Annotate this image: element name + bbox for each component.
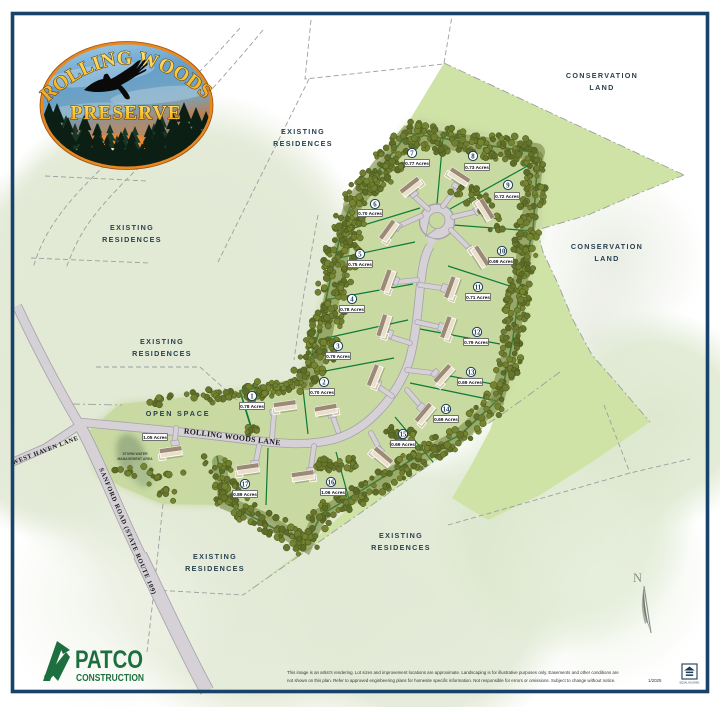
- svg-text:17: 17: [242, 481, 249, 488]
- svg-text:12: 12: [474, 329, 481, 336]
- svg-text:CONSERVATION: CONSERVATION: [571, 242, 643, 251]
- svg-text:EXISTING: EXISTING: [140, 337, 184, 346]
- svg-text:9: 9: [506, 182, 510, 189]
- svg-text:N: N: [633, 571, 642, 585]
- svg-text:0.78 Acres: 0.78 Acres: [340, 307, 364, 313]
- svg-text:0.89 Acres: 0.89 Acres: [233, 492, 257, 498]
- svg-text:RESIDENCES: RESIDENCES: [371, 543, 431, 552]
- svg-text:5: 5: [358, 251, 362, 258]
- svg-text:8: 8: [471, 153, 475, 160]
- svg-text:0.79 Acres: 0.79 Acres: [326, 354, 350, 360]
- svg-text:14: 14: [443, 406, 450, 413]
- svg-text:PATCO: PATCO: [75, 646, 143, 674]
- svg-text:STORM WATER: STORM WATER: [122, 452, 148, 456]
- svg-text:1/2025: 1/2025: [648, 678, 662, 683]
- svg-text:OPEN SPACE: OPEN SPACE: [146, 409, 211, 418]
- svg-text:RESIDENCES: RESIDENCES: [273, 139, 333, 148]
- svg-text:EQUAL HOUSING: EQUAL HOUSING: [680, 682, 700, 685]
- svg-text:11: 11: [475, 284, 482, 291]
- svg-text:EXISTING: EXISTING: [281, 127, 325, 136]
- svg-text:10: 10: [499, 248, 506, 255]
- svg-text:RESIDENCES: RESIDENCES: [102, 235, 162, 244]
- svg-text:3: 3: [336, 343, 340, 350]
- svg-text:2: 2: [322, 379, 326, 386]
- svg-text:EXISTING: EXISTING: [110, 223, 154, 232]
- svg-text:0.71 Acres: 0.71 Acres: [466, 295, 490, 301]
- svg-text:6: 6: [373, 201, 377, 208]
- svg-text:not shown on this plan. Refer: not shown on this plan. Refer to approve…: [287, 678, 616, 683]
- svg-text:1.06 Acres: 1.06 Acres: [321, 490, 345, 496]
- svg-text:This image is an artist's rend: This image is an artist's rendering. Lot…: [287, 670, 619, 675]
- svg-text:0.69 Acres: 0.69 Acres: [391, 442, 415, 448]
- svg-text:CONSTRUCTION: CONSTRUCTION: [76, 672, 144, 684]
- svg-text:4: 4: [350, 296, 354, 303]
- svg-text:RESIDENCES: RESIDENCES: [132, 349, 192, 358]
- svg-text:RESIDENCES: RESIDENCES: [185, 564, 245, 573]
- svg-text:7: 7: [410, 150, 414, 157]
- svg-text:1.05 Acres: 1.05 Acres: [143, 435, 167, 441]
- svg-text:MANAGEMENT AREA: MANAGEMENT AREA: [117, 457, 153, 461]
- svg-text:0.77 Acres: 0.77 Acres: [405, 161, 429, 167]
- svg-text:EXISTING: EXISTING: [379, 531, 423, 540]
- svg-text:LAND: LAND: [589, 83, 614, 92]
- svg-text:0.69 Acres: 0.69 Acres: [458, 380, 482, 386]
- svg-text:0.69 Acres: 0.69 Acres: [434, 417, 458, 423]
- svg-text:EXISTING: EXISTING: [193, 552, 237, 561]
- svg-text:0.72 Acres: 0.72 Acres: [495, 194, 519, 200]
- svg-text:1: 1: [250, 393, 254, 400]
- svg-text:16: 16: [328, 479, 335, 486]
- svg-text:0.75 Acres: 0.75 Acres: [348, 262, 372, 268]
- svg-text:CONSERVATION: CONSERVATION: [566, 71, 638, 80]
- svg-text:PRESERVE: PRESERVE: [70, 103, 181, 124]
- svg-text:LAND: LAND: [594, 254, 619, 263]
- svg-text:0.78 Acres: 0.78 Acres: [240, 404, 264, 410]
- svg-text:0.70 Acres: 0.70 Acres: [310, 390, 334, 396]
- svg-text:0.69 Acres: 0.69 Acres: [489, 259, 513, 265]
- svg-text:0.73 Acres: 0.73 Acres: [465, 165, 489, 171]
- svg-text:0.79 Acres: 0.79 Acres: [464, 340, 488, 346]
- svg-text:15: 15: [400, 431, 407, 438]
- svg-text:13: 13: [468, 369, 475, 376]
- svg-text:0.70 Acres: 0.70 Acres: [358, 211, 382, 217]
